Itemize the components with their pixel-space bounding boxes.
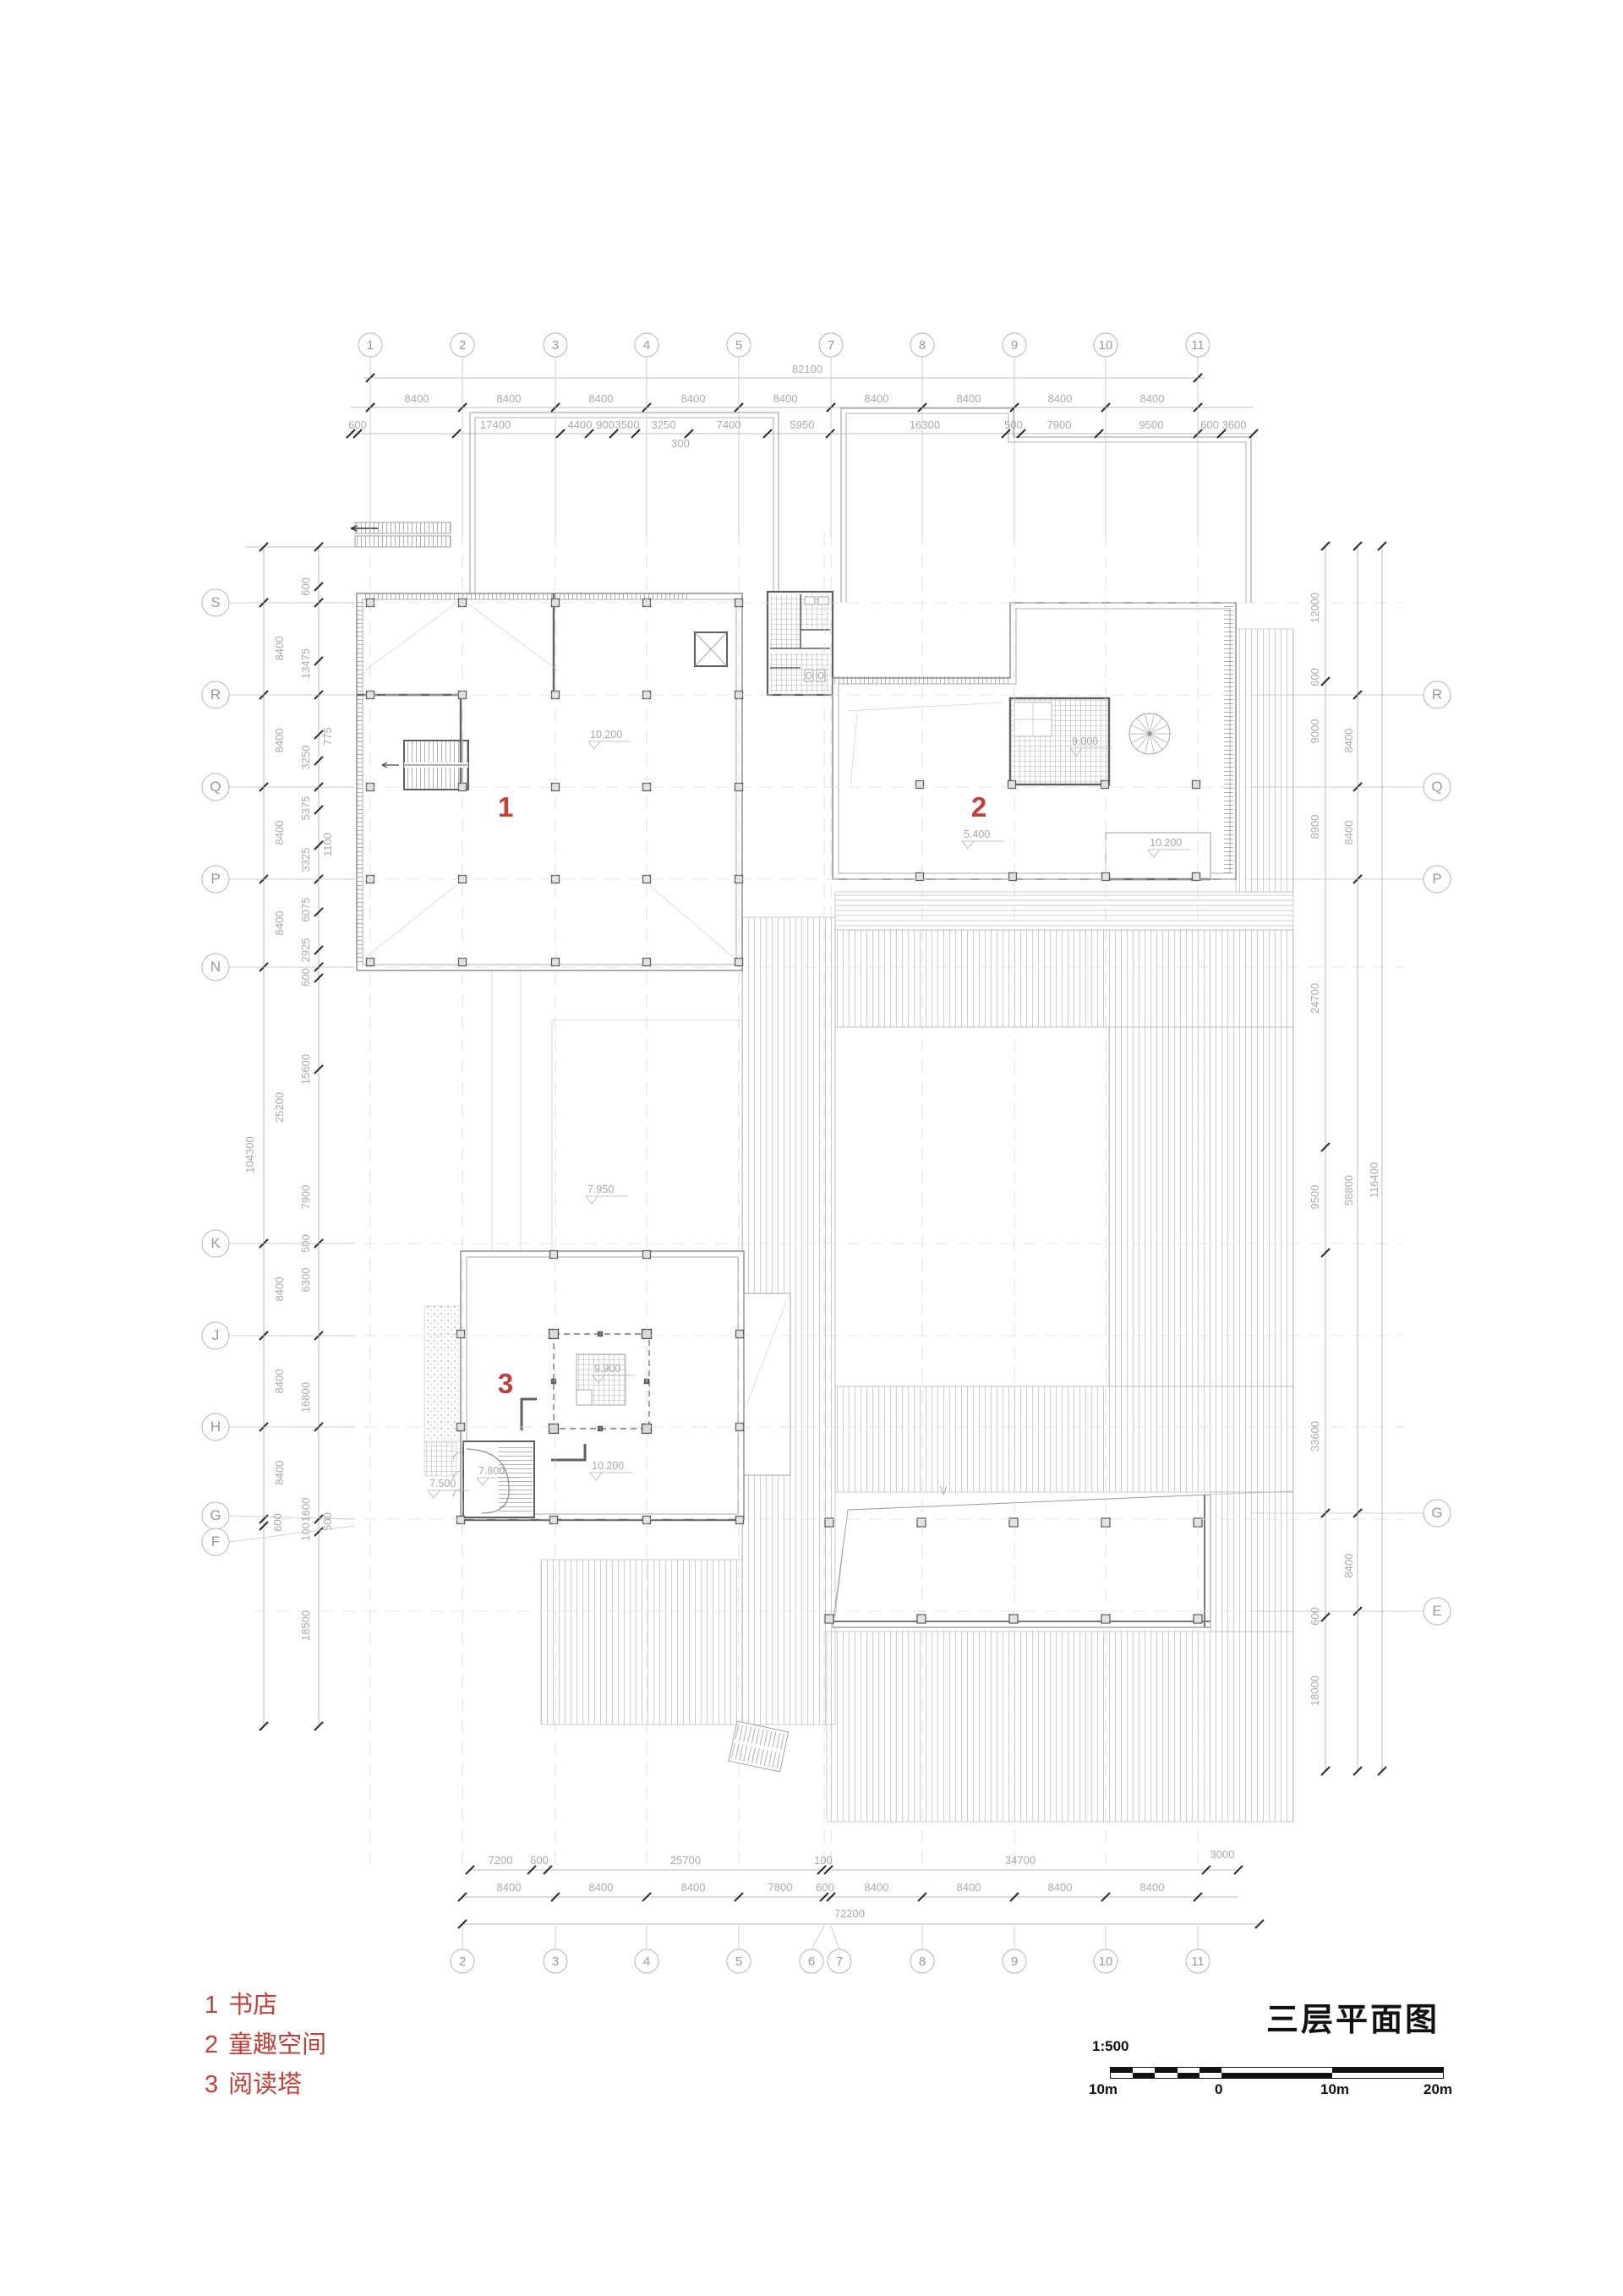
elevation-value: 7.950 [587,1184,614,1195]
column [917,1615,926,1623]
grid-bubble-top-label: 4 [643,338,650,353]
dim-right: 600 [1309,668,1321,686]
dim-right: 33600 [1309,1421,1321,1451]
scale-bar-segment [1155,2068,1177,2078]
dim-bottom-sub: 34700 [1005,1854,1036,1867]
grid-leader [811,1926,824,1949]
dim-left: 1600 [299,1498,312,1522]
dim-top-sub: 900 [596,418,615,431]
scale-bar-label: 10m [1089,2081,1118,2098]
dim-left: 6075 [299,898,312,922]
scale-bar-label: 20m [1424,2081,1452,2098]
dim-bottom-sub: 7200 [489,1854,513,1867]
grid-bubble-bottom-label: 5 [735,1954,742,1969]
grid-bubble-bottom-label: 3 [552,1954,559,1969]
dim-left: 3250 [299,746,312,770]
dim-bottom-bay: 8400 [681,1881,706,1894]
dim-top-bay: 8400 [681,392,706,405]
dim-top-bay: 8400 [497,392,522,405]
grid-bubble-left-label: P [210,871,220,887]
building-3-reading-tower [424,1251,790,1520]
dim-right: 8400 [1342,821,1355,845]
drawing-sheet: 8210084008400840084008400840084008400840… [0,0,1623,2296]
dim-left: 15600 [299,1054,312,1085]
grid-bubble-top-label: 2 [459,338,466,353]
column [598,1332,603,1337]
scale-bar-label: 10m [1320,2081,1349,2098]
dim-top-total: 82100 [792,363,822,375]
column [457,1517,465,1524]
dim-top-sub: 500 [1004,418,1023,431]
elevation-value: 9.900 [594,1363,620,1375]
room-number-label: 3 [498,1368,513,1399]
elevation-value: 5.400 [964,828,990,840]
column [736,1517,744,1524]
dim-top-bay: 8400 [405,392,429,405]
grid-bubble-top-label: 10 [1099,338,1113,353]
dim-bottom-bay: 600 [816,1881,834,1894]
dim-left: 7900 [299,1185,312,1210]
column [917,1518,926,1527]
exterior-stair-upper [351,522,451,547]
scale-ratio: 1:500 [1092,2038,1128,2055]
dim-bottom-bay: 8400 [1140,1881,1165,1894]
dim-left: 8400 [273,1369,286,1394]
column [598,1427,603,1431]
dim-right: 9500 [1309,1185,1321,1210]
scale-bar-segment [1199,2068,1221,2078]
grid-bubble-left-label: R [210,686,221,702]
column [550,1251,558,1259]
elevator-shaft [695,632,727,666]
legend: 1书店 2童趣空间 3阅读塔 [205,1988,326,2107]
grid-bubble-bottom-label: 6 [808,1954,815,1969]
legend-label: 书店 [228,1992,277,2019]
dim-top-bay: 8400 [589,392,614,405]
dim-bottom-sub: 600 [530,1854,549,1867]
column [1009,1615,1018,1623]
scale-bar-segment [1332,2068,1443,2078]
dim-left: 8400 [273,1461,286,1485]
grid-bubble-top-label: 1 [367,338,374,353]
dim-top-sub: 7400 [717,418,741,431]
elevation-triangle-icon [428,1490,440,1498]
grid-bubble-bottom-label: 7 [836,1954,843,1969]
column [736,1331,744,1338]
grid-bubble-bottom-label: 10 [1099,1954,1113,1969]
dim-bottom-bay: 8400 [1048,1881,1073,1894]
dim-right: 8900 [1309,815,1321,839]
scale-bar-label: 0 [1215,2081,1222,2098]
dim-top-sub: 17400 [480,418,511,431]
dim-left: 500 [321,1512,334,1531]
scale-bar-segment [1133,2068,1155,2078]
dim-top-sub: 3500 [615,418,640,431]
column [550,1517,558,1524]
scale-bar [1110,2067,1444,2079]
dim-left: 8400 [273,911,286,936]
grid-leader [229,1526,355,1542]
dim-bottom-sub: 25700 [670,1854,701,1867]
column [642,1424,652,1434]
legend-num: 1 [205,1992,218,2019]
dim-left: 600 [299,577,312,596]
elevation-triangle-icon [586,1196,598,1204]
grid-bubble-top-label: 9 [1011,338,1018,353]
column [825,1518,833,1527]
dim-right: 12000 [1309,593,1321,623]
dim-top-sub: 3250 [652,418,676,431]
dim-bottom-bay: 7800 [768,1881,793,1894]
dim-bottom-total: 72200 [834,1907,865,1920]
grid-bubble-left-label: K [210,1235,221,1251]
legend-label: 童趣空间 [228,2031,326,2058]
tower-stair [453,1441,534,1517]
column [457,1331,465,1338]
grid-leader [831,1926,839,1949]
room-number-label: 2 [971,791,986,823]
dim-right: 24700 [1309,983,1321,1014]
dim-bottom-sub: 3000 [1210,1848,1235,1861]
grid-leader [229,1516,355,1519]
dim-left: 3325 [299,848,312,872]
grid-bubble-left-label: J [212,1327,220,1343]
dim-left: 13475 [299,648,312,679]
legend-item-reading-tower: 3阅读塔 [205,2068,326,2107]
dim-left: 8400 [273,637,286,661]
dim-left: 18500 [299,1610,312,1641]
dim-left: 8400 [273,729,286,753]
grid-bubble-right-label: R [1432,686,1442,702]
dim-right: 600 [1309,1607,1321,1626]
grid-bubble-left-label: S [210,594,220,610]
elevation-value: 7.800 [478,1465,505,1477]
dim-top-sub: 4400 [568,418,593,431]
elevation-value: 10.200 [590,729,622,741]
legend-label: 阅读塔 [228,2071,302,2098]
grid-bubble-right-label: G [1431,1505,1442,1521]
legend-num: 3 [205,2071,218,2098]
grid-bubble-top-label: 7 [828,338,834,353]
grid-bubble-right-label: E [1432,1603,1441,1619]
dim-left: 600 [299,968,312,987]
dim-bottom-bay: 8400 [865,1881,889,1894]
dim-right: 8400 [1342,1554,1355,1578]
dim-top-bay: 8400 [773,392,798,405]
toilet-core [768,592,833,695]
elevation-value: 10.200 [592,1460,624,1472]
column [549,1424,559,1434]
column [1009,1518,1018,1527]
grid-bubble-top-label: 11 [1191,338,1205,353]
grid-bubble-right-label: P [1432,871,1441,887]
dim-top-bay: 8400 [1048,392,1073,405]
dim-left: 600 [271,1513,284,1532]
grid-bubble-bottom-label: 8 [919,1954,926,1969]
dim-left: 25200 [273,1092,286,1123]
grid-bubble-left-label: H [210,1419,221,1435]
dim-right: 58800 [1342,1175,1355,1205]
dim-top-sub: 600 [348,418,367,431]
dim-top-bay: 8400 [1140,392,1165,405]
column [825,1615,833,1623]
grid-bubble-left-label: N [210,959,221,975]
scale-bar-segment [1178,2068,1199,2078]
dim-bottom-bay: 8400 [957,1881,981,1894]
grid-bubble-bottom-label: 2 [459,1954,466,1969]
dim-top-sub: 3600 [1222,418,1247,431]
grid-bubble-bottom-label: 11 [1191,1954,1205,1969]
dim-top-sub: 16300 [910,418,940,431]
column [643,1251,651,1259]
dim-top-sub: 5950 [790,418,815,431]
grid-bubble-bottom-label: 4 [643,1954,650,1969]
dim-bottom-bay: 8400 [497,1881,522,1894]
grid-bubble-top-label: 8 [919,338,926,353]
dim-left: 8400 [273,821,286,845]
dim-right: 18000 [1309,1676,1321,1706]
grid-bubble-left-label: Q [210,779,221,795]
dim-left: 1100 [321,833,334,856]
legend-num: 2 [205,2031,218,2058]
elevation-value: 10.200 [1150,837,1182,849]
dim-left: 775 [321,727,334,746]
dim-top-sub: 300 [671,437,690,450]
grid-bubble-top-label: 3 [552,338,559,353]
dim-top-bay: 8400 [865,392,889,405]
grid-bubble-left-label: F [211,1533,220,1550]
dim-left: 6300 [299,1268,312,1293]
dim-left: 2925 [299,938,312,963]
dim-left: 5375 [299,796,312,821]
legend-item-bookstore: 1书店 [205,1988,326,2028]
dim-top-sub: 7900 [1047,418,1072,431]
dim-bottom-bay: 8400 [589,1881,614,1894]
scale-bar-segment [1221,2068,1332,2078]
spiral-stair [1129,713,1170,754]
dim-top-sub: 600 [1200,418,1219,431]
grid-bubble-right-label: Q [1431,779,1442,795]
grid-bubble-top-label: 5 [735,338,742,353]
spiral-center [1148,732,1152,736]
legend-item-kids-space: 2童趣空间 [205,2028,326,2068]
dim-left: 16800 [299,1382,312,1413]
exterior-stair-lower [729,1721,789,1772]
floor-plan-canvas: 8210084008400840084008400840084008400840… [0,0,1623,2296]
dim-right: 116400 [1368,1162,1380,1198]
dim-top-bay: 8400 [957,392,981,405]
dim-bottom-sub: 100 [814,1854,833,1867]
dim-right: 8400 [1342,729,1355,753]
room-number-label: 1 [498,791,513,823]
grid-bubble-left-label: G [210,1507,221,1523]
dim-left: 8400 [273,1277,286,1302]
dim-top-sub: 9500 [1139,418,1164,431]
dim-right: 9000 [1309,719,1321,744]
drawing-title: 三层平面图 [1266,1993,1440,2040]
dim-left: 104300 [243,1136,256,1173]
elevation-value: 9.000 [1072,735,1098,747]
column [549,1330,559,1339]
grid-bubble-bottom-label: 9 [1011,1954,1018,1969]
elevation-value: 7.500 [429,1478,456,1490]
scale-bar-segment [1111,2068,1133,2078]
